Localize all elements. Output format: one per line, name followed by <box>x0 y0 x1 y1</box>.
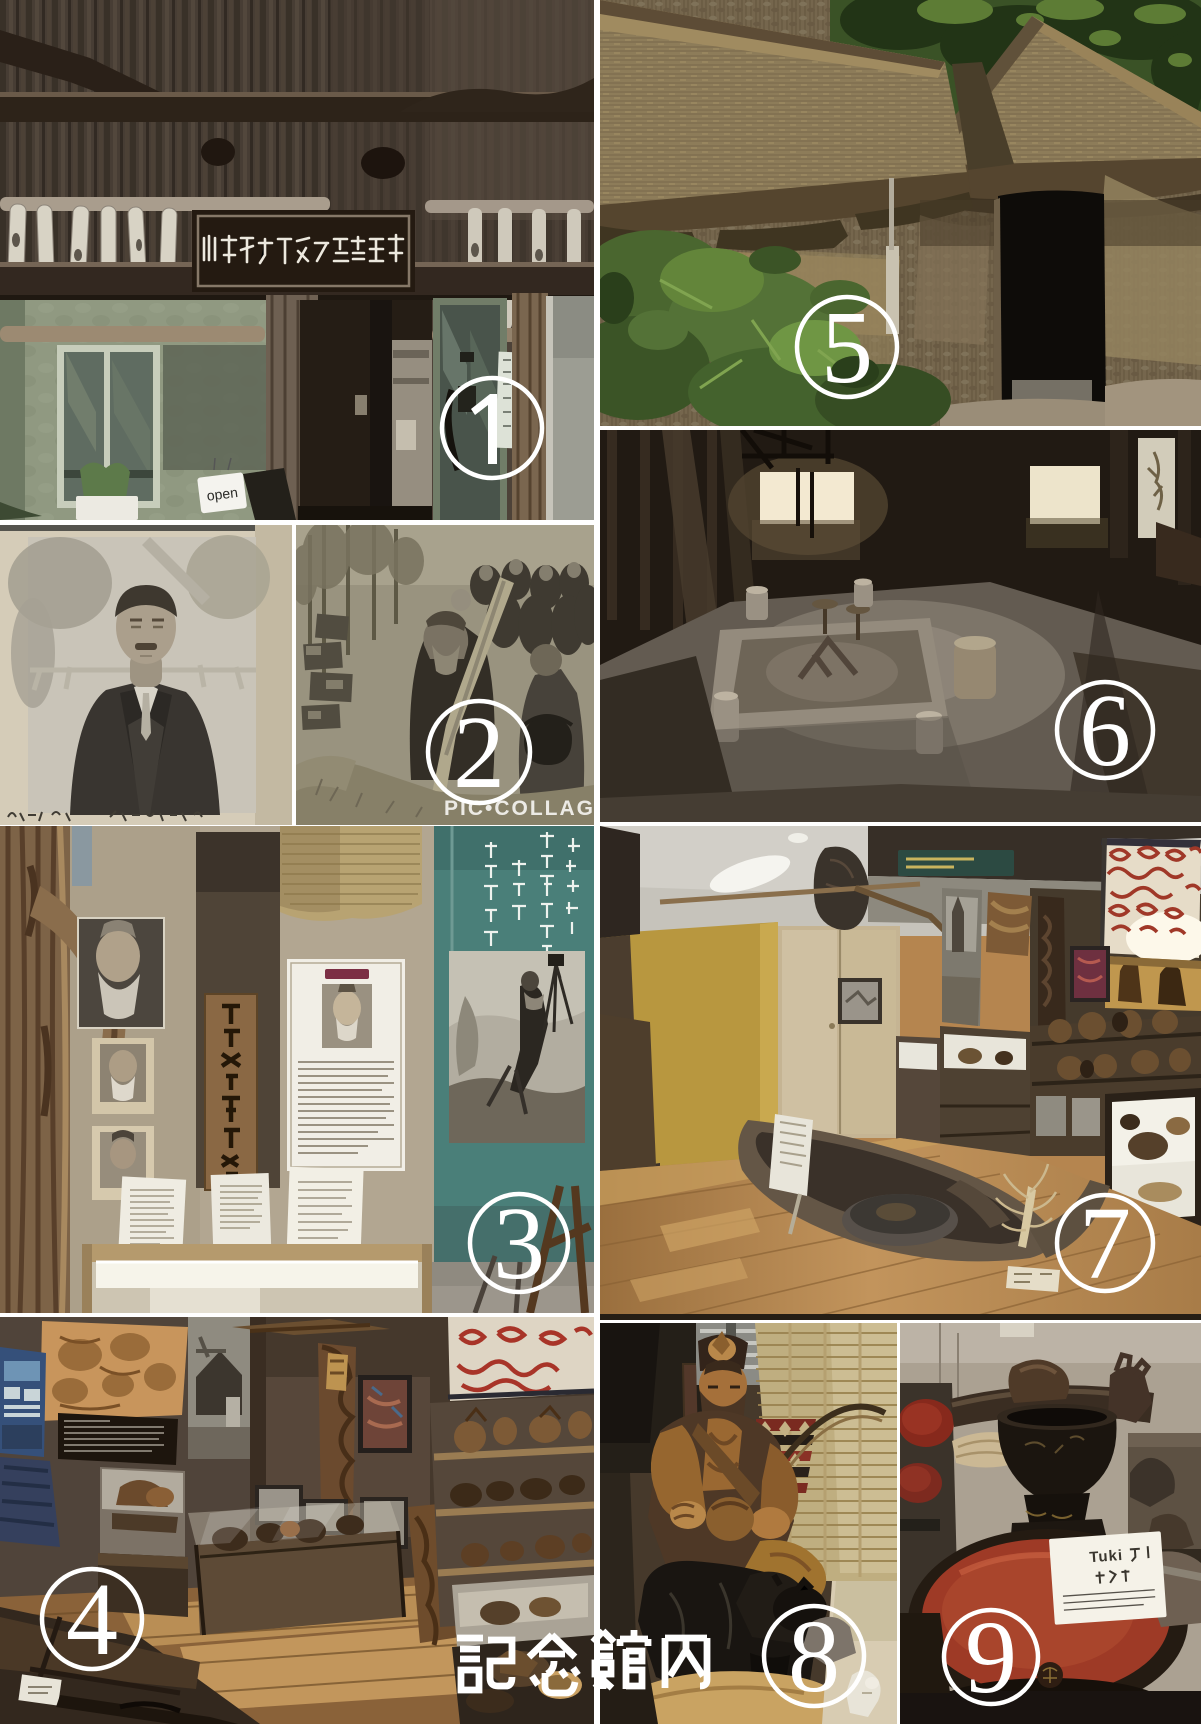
svg-text:2: 2 <box>453 695 505 810</box>
svg-text:8: 8 <box>788 1599 840 1714</box>
svg-text:7: 7 <box>1079 1186 1131 1301</box>
svg-text:6: 6 <box>1079 673 1131 788</box>
svg-text:9: 9 <box>965 1600 1017 1715</box>
svg-text:4: 4 <box>66 1562 118 1677</box>
svg-text:5: 5 <box>821 290 873 405</box>
svg-text:3: 3 <box>493 1186 545 1301</box>
